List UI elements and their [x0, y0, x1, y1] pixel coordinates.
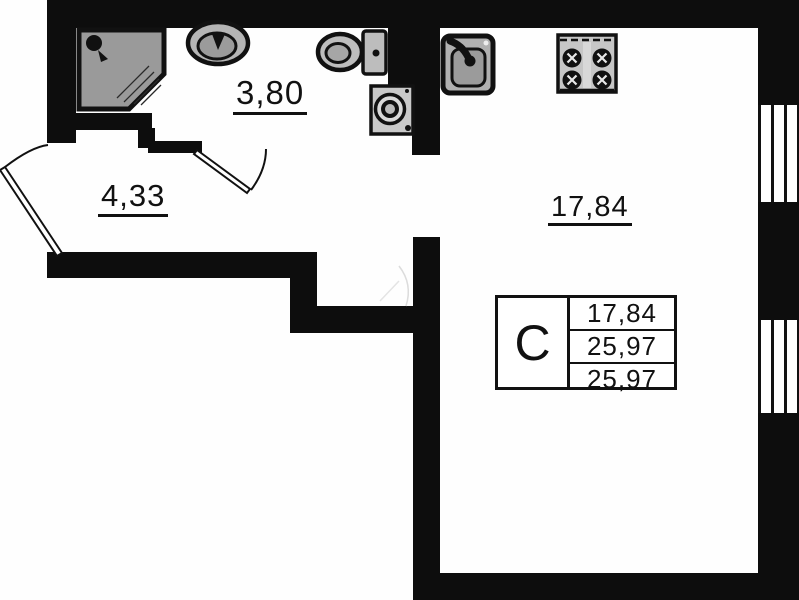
bathroom-area-label: 3,80 — [233, 76, 307, 115]
stove-icon — [558, 35, 616, 92]
hallway-area-label: 4,33 — [98, 180, 168, 217]
shower-icon — [79, 30, 164, 109]
kitchen-sink-icon — [443, 36, 493, 93]
stamp-row-living-area: 17,84 — [570, 298, 674, 329]
stamp-values-column: 17,84 25,97 25,97 — [570, 298, 674, 387]
living-area-label: 17,84 — [548, 192, 632, 226]
fixtures-layer — [0, 0, 799, 600]
stamp-row-full-area: 25,97 — [570, 362, 674, 395]
washing-machine-icon — [371, 86, 413, 134]
area-stamp-table: С 17,84 25,97 25,97 — [495, 295, 677, 390]
entrance-door-icon — [0, 145, 62, 256]
scan-artifact — [380, 266, 408, 306]
stamp-row-total-area: 25,97 — [570, 329, 674, 362]
interior-door-icon — [194, 149, 266, 193]
floor-plan: 3,80 4,33 17,84 С 17,84 25,97 25,97 — [0, 0, 799, 600]
stamp-type-letter: С — [498, 298, 570, 387]
washbasin-icon — [188, 22, 248, 64]
toilet-icon — [318, 31, 386, 74]
